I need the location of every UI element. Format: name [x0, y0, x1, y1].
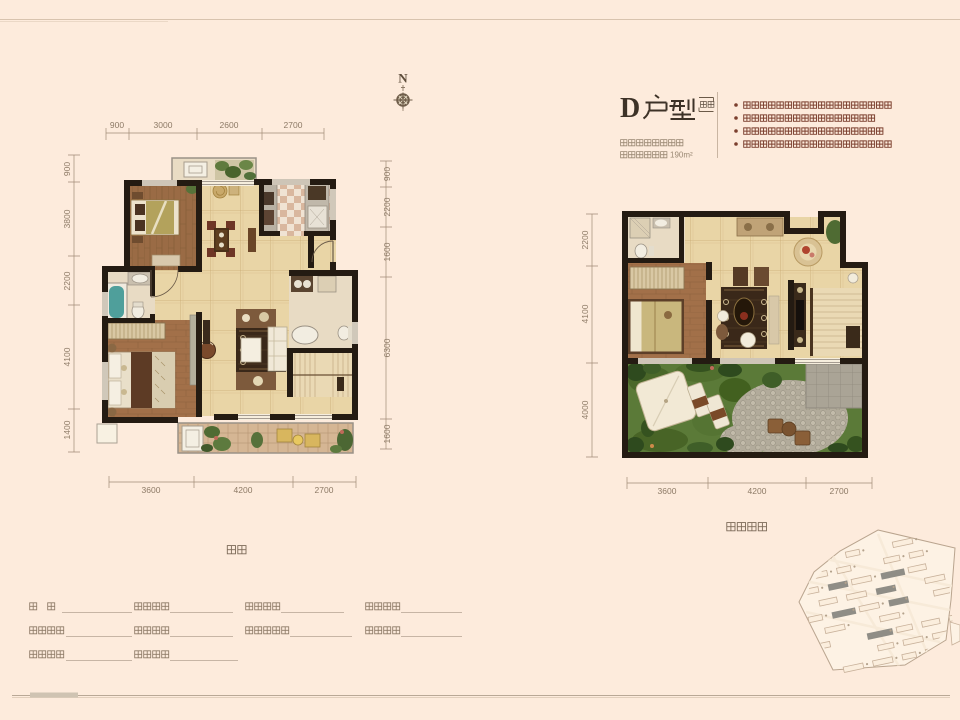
svg-text:3000: 3000 [154, 120, 173, 130]
svg-text:900: 900 [382, 167, 392, 181]
svg-text:2200: 2200 [580, 230, 590, 249]
svg-text:3600: 3600 [142, 485, 161, 495]
svg-text:3600: 3600 [658, 486, 677, 496]
svg-text:3800: 3800 [62, 209, 72, 228]
svg-text:2700: 2700 [284, 120, 303, 130]
svg-text:190m²: 190m² [670, 151, 693, 160]
svg-text:4200: 4200 [748, 486, 767, 496]
svg-text:900: 900 [110, 120, 124, 130]
svg-text:4100: 4100 [62, 347, 72, 366]
svg-text:900: 900 [62, 162, 72, 176]
svg-text:N: N [398, 71, 408, 86]
svg-text:2700: 2700 [315, 485, 334, 495]
svg-text:4100: 4100 [580, 304, 590, 323]
svg-text:1400: 1400 [62, 420, 72, 439]
svg-text:4200: 4200 [234, 485, 253, 495]
svg-text:1600: 1600 [382, 424, 392, 443]
svg-text:4000: 4000 [580, 400, 590, 419]
svg-text:2200: 2200 [382, 197, 392, 216]
svg-text:6300: 6300 [382, 338, 392, 357]
svg-text:2600: 2600 [220, 120, 239, 130]
svg-text:D: D [620, 93, 640, 124]
svg-text:2200: 2200 [62, 271, 72, 290]
svg-text:1600: 1600 [382, 242, 392, 261]
svg-text:2700: 2700 [830, 486, 849, 496]
